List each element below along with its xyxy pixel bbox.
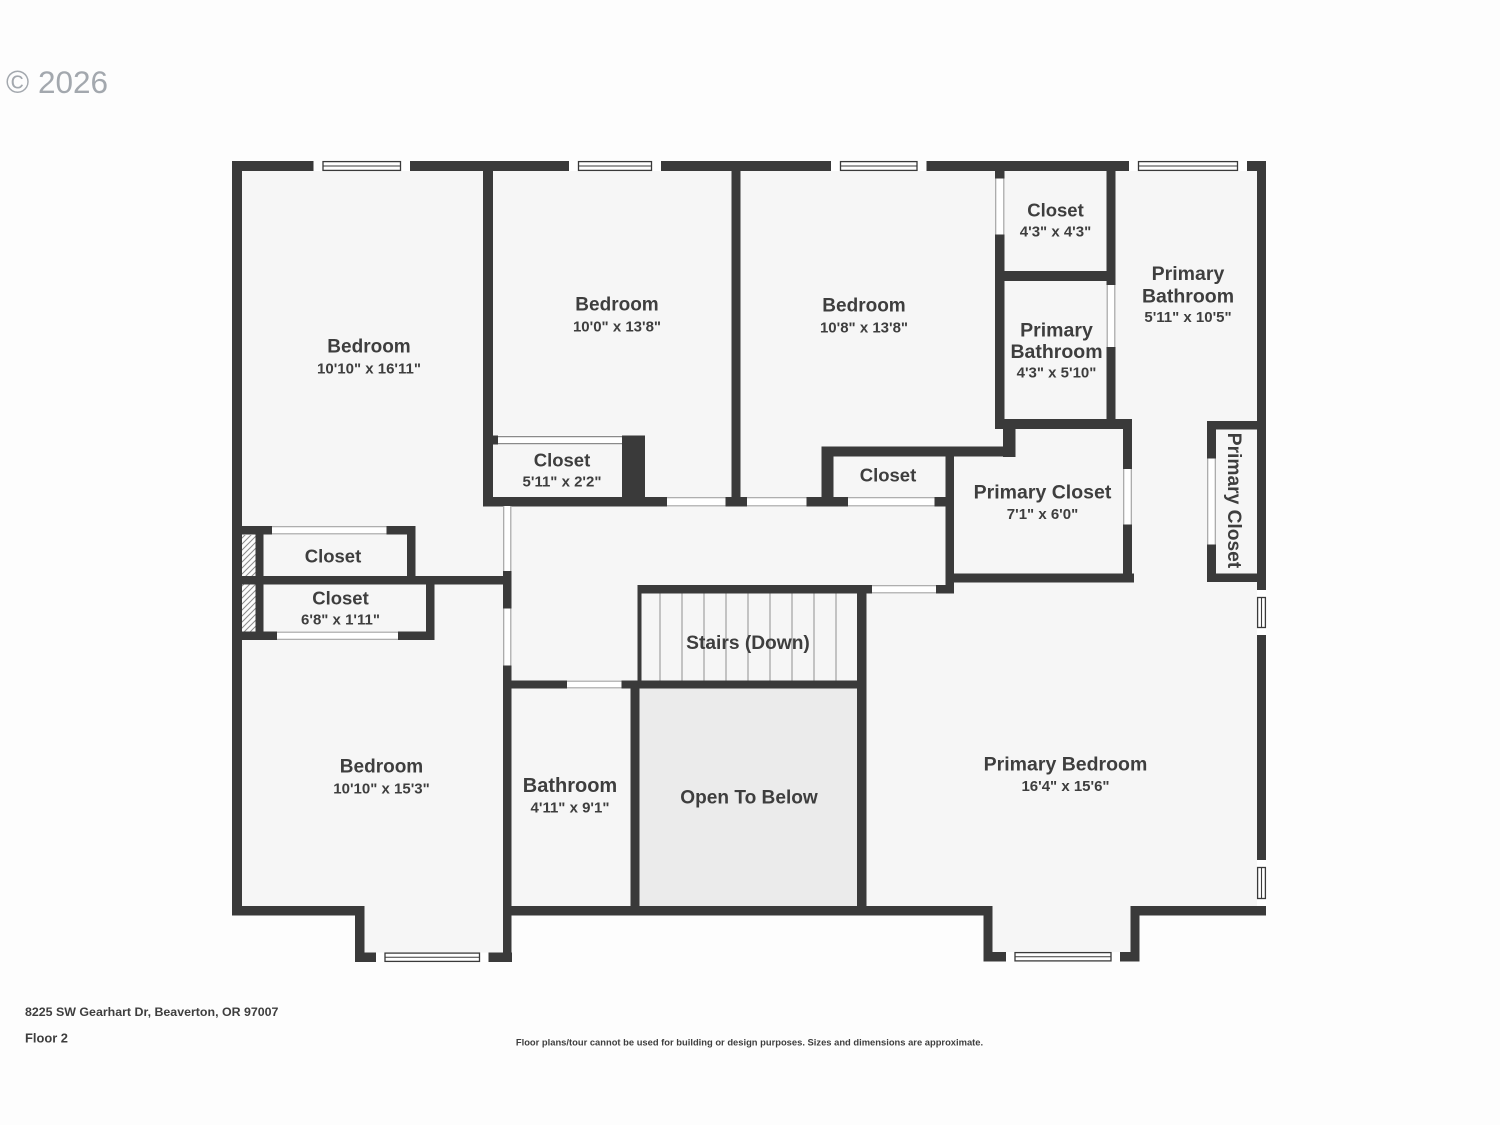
svg-text:Bedroom: Bedroom [575,295,658,316]
svg-text:Primary: Primary [1152,263,1225,285]
svg-text:© 2026: © 2026 [6,64,108,100]
svg-text:4'11" x 9'1": 4'11" x 9'1" [531,800,610,817]
svg-text:Bedroom: Bedroom [340,757,423,778]
svg-text:8225 SW Gearhart Dr, Beaverton: 8225 SW Gearhart Dr, Beaverton, OR 97007 [25,1005,279,1019]
svg-text:Closet: Closet [860,465,917,486]
svg-text:10'10" x 15'3": 10'10" x 15'3" [333,781,429,798]
svg-text:6'8" x 1'11": 6'8" x 1'11" [301,612,380,629]
svg-text:Bathroom: Bathroom [1010,341,1102,363]
svg-text:Floor 2: Floor 2 [25,1031,68,1046]
svg-text:Floor plans/tour cannot be use: Floor plans/tour cannot be used for buil… [516,1037,983,1048]
svg-text:Closet: Closet [305,546,362,567]
svg-text:4'3" x 5'10": 4'3" x 5'10" [1017,365,1097,382]
svg-text:Closet: Closet [312,588,369,609]
svg-text:Closet: Closet [534,450,591,471]
svg-text:10'10" x 16'11": 10'10" x 16'11" [317,361,421,378]
svg-text:Bedroom: Bedroom [822,296,905,317]
svg-text:16'4" x 15'6": 16'4" x 15'6" [1021,778,1109,795]
svg-text:Primary: Primary [1020,320,1093,342]
svg-text:Primary Bedroom: Primary Bedroom [984,754,1148,776]
svg-text:Closet: Closet [1027,200,1084,221]
svg-text:4'3" x 4'3": 4'3" x 4'3" [1020,224,1091,241]
svg-text:7'1" x 6'0": 7'1" x 6'0" [1007,506,1078,523]
svg-text:10'8" x 13'8": 10'8" x 13'8" [820,320,908,337]
svg-text:Bathroom: Bathroom [1142,286,1234,308]
svg-text:Bathroom: Bathroom [523,775,617,797]
svg-text:10'0" x 13'8": 10'0" x 13'8" [573,319,661,336]
svg-text:5'11" x 2'2": 5'11" x 2'2" [523,474,602,491]
svg-text:Primary Closet: Primary Closet [974,482,1112,504]
svg-text:Primary Closet: Primary Closet [1223,433,1244,569]
svg-text:5'11" x 10'5": 5'11" x 10'5" [1144,309,1231,326]
svg-text:Stairs (Down): Stairs (Down) [686,633,810,654]
svg-text:Open To Below: Open To Below [680,788,818,809]
svg-text:Bedroom: Bedroom [327,337,410,358]
